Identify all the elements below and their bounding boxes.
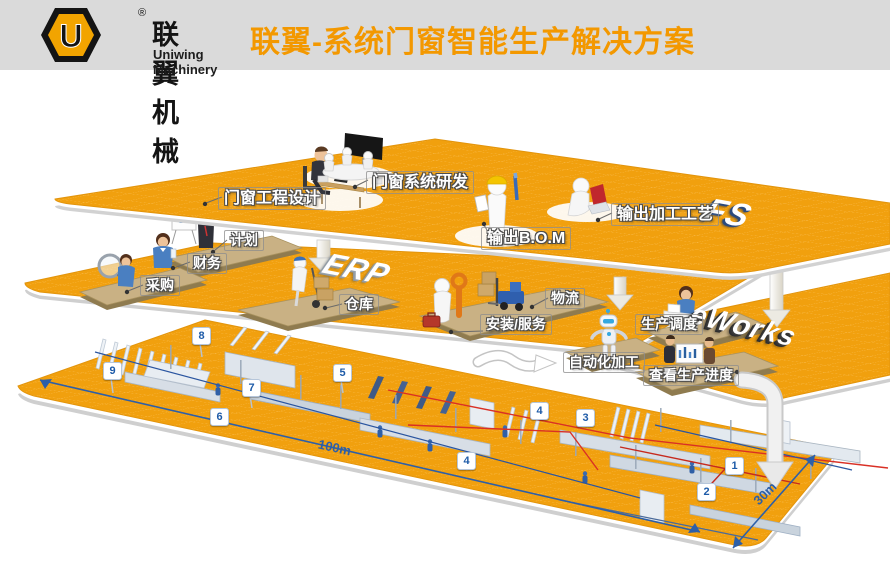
- station-marker-5: 5: [333, 364, 352, 382]
- brand-name-cn: 联翼机械: [152, 13, 182, 169]
- label-install: 安装/服务: [480, 314, 552, 335]
- uniwing-logo-icon: U: [40, 5, 102, 65]
- registered-mark: ®: [138, 7, 146, 19]
- header-bar: U ® 联翼机械 Uniwing Machinery 联翼-系统门窗智能生产解决…: [0, 0, 890, 70]
- swoosh-arrow-automation: [478, 355, 556, 372]
- label-finance: 财务: [187, 253, 227, 274]
- label-logistics: 物流: [545, 288, 585, 309]
- label-warehouse: 仓库: [339, 294, 379, 315]
- poster-canvas: U ® 联翼机械 Uniwing Machinery 联翼-系统门窗智能生产解决…: [0, 0, 890, 567]
- station-marker-2: 2: [697, 483, 716, 501]
- label-purchase: 采购: [140, 275, 180, 296]
- label-progress: 查看生产进度: [643, 365, 739, 386]
- label-bom: 输出B.O.M: [481, 227, 571, 250]
- svg-text:U: U: [59, 18, 82, 54]
- station-marker-3: 3: [576, 409, 595, 427]
- station-marker-6: 6: [210, 408, 229, 426]
- label-craft: 输出加工工艺: [611, 203, 719, 226]
- label-design: 门窗工程设计: [218, 187, 326, 210]
- brand-block: U ® 联翼机械 Uniwing Machinery: [40, 5, 102, 65]
- station-marker-7: 7: [242, 379, 261, 397]
- station-marker-8: 8: [192, 327, 211, 345]
- poster-title: 联翼-系统门窗智能生产解决方案: [250, 17, 695, 61]
- brand-name-en: Uniwing Machinery: [153, 47, 217, 77]
- label-rd: 门窗系统研发: [366, 171, 474, 194]
- station-marker-4b: 4: [457, 452, 476, 470]
- station-marker-1: 1: [725, 457, 744, 475]
- station-marker-4a: 4: [530, 402, 549, 420]
- label-automation: 自动化加工: [563, 352, 645, 373]
- label-plan: 计划: [224, 230, 264, 251]
- isometric-scene: [0, 0, 890, 567]
- label-schedule: 生产调度: [635, 314, 703, 335]
- station-marker-9: 9: [103, 362, 122, 380]
